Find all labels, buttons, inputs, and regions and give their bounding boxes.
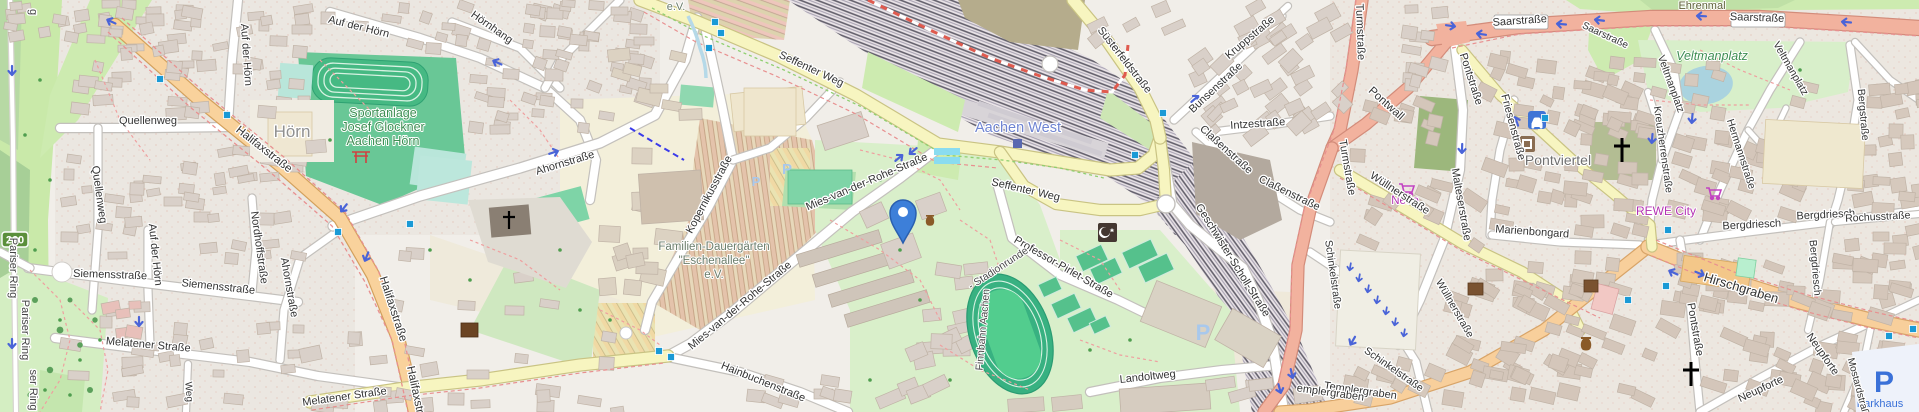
svg-text:Familien-Dauergärten: Familien-Dauergärten bbox=[658, 241, 769, 253]
svg-text:Turmstraße: Turmstraße bbox=[1353, 3, 1367, 60]
svg-text:Pariser Ring: Pariser Ring bbox=[19, 300, 31, 361]
svg-text:e.V.: e.V. bbox=[667, 1, 686, 13]
svg-text:P: P bbox=[782, 161, 792, 178]
svg-text:Quellenweg: Quellenweg bbox=[119, 115, 177, 127]
svg-text:Hörn: Hörn bbox=[274, 122, 311, 141]
svg-text:Pariser Ring: Pariser Ring bbox=[7, 238, 19, 299]
svg-text:Sportanlage: Sportanlage bbox=[349, 106, 416, 120]
svg-text:"Eschenallee": "Eschenallee" bbox=[679, 255, 750, 267]
svg-text:Aachen Hörn: Aachen Hörn bbox=[347, 134, 420, 148]
svg-text:REWE City: REWE City bbox=[1636, 204, 1696, 218]
svg-text:P: P bbox=[1874, 366, 1894, 399]
svg-text:P: P bbox=[1196, 320, 1211, 345]
svg-text:Weg: Weg bbox=[182, 381, 194, 402]
svg-text:Ehrenmal: Ehrenmal bbox=[1678, 0, 1725, 12]
svg-text:Pontviertel: Pontviertel bbox=[1525, 152, 1591, 168]
svg-text:ser Ring: ser Ring bbox=[27, 370, 39, 411]
svg-text:e.V.: e.V. bbox=[704, 269, 723, 281]
svg-text:Veltmanplatz: Veltmanplatz bbox=[1676, 49, 1749, 63]
svg-text:Saarstraße: Saarstraße bbox=[1730, 11, 1785, 25]
svg-text:Aachen West: Aachen West bbox=[975, 120, 1061, 136]
svg-text:g: g bbox=[27, 9, 39, 15]
svg-text:P: P bbox=[752, 174, 761, 189]
svg-text:Josef Glockner: Josef Glockner bbox=[341, 120, 424, 134]
